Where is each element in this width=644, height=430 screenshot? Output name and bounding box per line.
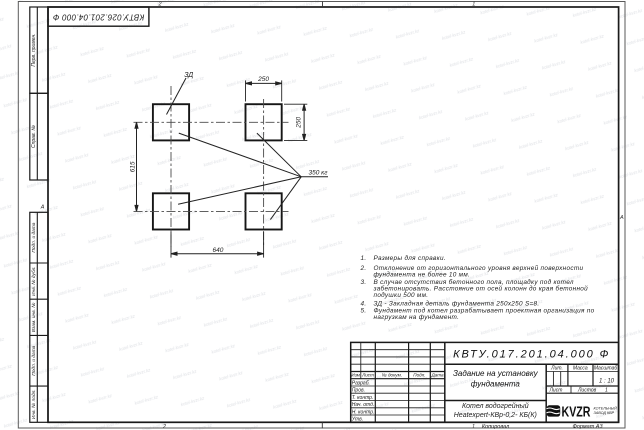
svg-text:Пров.: Пров. [352,388,365,394]
svg-text:2: 2 [162,424,166,430]
svg-text:Подп. и дата: Подп. и дата [31,345,37,375]
svg-text:Дата: Дата [430,373,444,378]
svg-text:Размеры для справки.: Размеры для справки. [374,254,446,262]
svg-text:Разраб.: Разраб. [352,380,370,386]
svg-text:А: А [619,215,624,221]
svg-text:250: 250 [296,116,303,128]
svg-text:5.: 5. [361,307,367,314]
svg-text:КВТУ.026.201.04.000 Ф: КВТУ.026.201.04.000 Ф [52,12,144,21]
svg-text:1: 1 [472,2,475,8]
svg-text:№ докум.: № докум. [382,373,402,378]
svg-text:Т. контр.: Т. контр. [352,395,374,401]
svg-text:ЗАВОД КВР: ЗАВОД КВР [594,411,615,415]
svg-text:КВТУ.017.201.04.000 Ф: КВТУ.017.201.04.000 Ф [453,349,610,361]
svg-text:Heatexpert-КВр-0,2- КБ(К): Heatexpert-КВр-0,2- КБ(К) [454,412,537,419]
svg-text:4.: 4. [361,300,367,307]
svg-text:Подп. и дата: Подп. и дата [31,222,37,252]
svg-text:1.: 1. [361,255,367,262]
svg-text:Масса: Масса [573,366,588,372]
svg-text:Н. контр.: Н. контр. [352,409,375,415]
svg-text:Формат А3: Формат А3 [572,424,603,430]
svg-text:А: А [40,205,45,211]
svg-text:Перв. примен.: Перв. примен. [31,33,37,66]
svg-text:фундамента не более 10 мм.: фундамента не более 10 мм. [374,271,471,279]
svg-text:Взам. инв. №: Взам. инв. № [31,302,37,332]
svg-text:250: 250 [257,76,269,83]
svg-text:3.: 3. [361,279,367,286]
svg-text:Масштаб: Масштаб [594,366,618,372]
svg-text:KVZR: KVZR [562,403,591,420]
svg-text:2: 2 [157,2,161,8]
svg-text:Утв.: Утв. [352,417,363,423]
svg-text:Листов: Листов [577,387,597,393]
svg-text:Инв. № подл.: Инв. № подл. [31,389,37,419]
svg-text:ЗД - Закладная деталь фундамен: ЗД - Закладная деталь фундамента 250х250… [374,299,540,307]
svg-text:1: 1 [605,387,608,393]
svg-text:640: 640 [212,247,223,254]
svg-text:фундамента: фундамента [471,380,521,389]
svg-text:1: 1 [472,424,475,430]
svg-text:Лист: Лист [361,373,374,378]
svg-text:Лист: Лист [549,387,563,393]
svg-text:Лит.: Лит. [550,366,563,372]
svg-text:Задание на установку: Задание на установку [453,369,539,378]
svg-text:подушки 500 мм.: подушки 500 мм. [374,291,429,299]
svg-text:Копировал: Копировал [482,424,509,430]
svg-text:Котел водогрейный: Котел водогрейный [462,402,529,410]
svg-text:Изм: Изм [351,372,360,377]
svg-text:нагрузкам на фундамент.: нагрузкам на фундамент. [374,313,460,321]
svg-text:Инв. № дубл.: Инв. № дубл. [31,266,37,296]
svg-text:Нач. отд.: Нач. отд. [352,402,374,408]
svg-text:350 кг: 350 кг [309,170,329,177]
svg-text:1 : 10: 1 : 10 [599,379,615,385]
svg-text:2.: 2. [360,265,367,272]
svg-text:Справ. №: Справ. № [31,125,37,148]
svg-text:Подп.: Подп. [413,373,425,378]
svg-text:КОТЕЛЬНЫЙ: КОТЕЛЬНЫЙ [594,406,618,410]
svg-text:615: 615 [129,161,136,172]
